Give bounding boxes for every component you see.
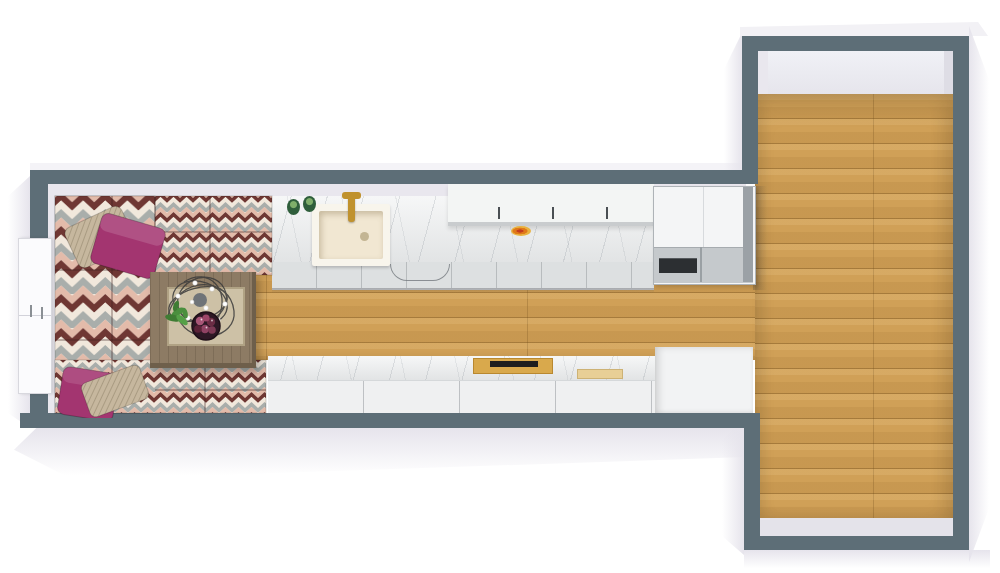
sink-drain (360, 232, 369, 241)
door-leaf-seam (19, 315, 51, 316)
wall-rightroom-left-lower (744, 413, 760, 550)
double-door[interactable] (18, 238, 52, 394)
floor-right-room (755, 94, 953, 518)
exterior-face-rightroom-right (969, 26, 989, 562)
gold-faucet-spout (342, 192, 361, 199)
exterior-face-rightroom-bottom (744, 550, 990, 570)
door-handle (30, 305, 32, 317)
wall-wing-top (32, 170, 758, 184)
fridge-door-seam (700, 247, 702, 282)
tall-cabinet-block[interactable] (655, 347, 753, 415)
decor-bowl (192, 312, 220, 340)
wall-rightroom-bottom (744, 536, 969, 550)
island-counter-front[interactable] (268, 380, 655, 415)
cabinet-handle (606, 207, 608, 219)
wall-rightroom-left-upper (742, 36, 758, 184)
drawer-arc-handle (390, 264, 450, 281)
cutting-board-inlay (490, 361, 538, 367)
door-handle (41, 307, 43, 319)
inner-face-rightroom-bottom (757, 518, 954, 536)
exterior-face-rightroom-topwedge (724, 30, 742, 170)
refrigerator[interactable] (653, 186, 756, 285)
floorplan-render (0, 0, 1000, 573)
kitchen-counter-floor-shadow (272, 288, 654, 293)
inner-face-rightroom-top (756, 51, 954, 94)
fruit-dish[interactable] (511, 226, 531, 236)
wall-rightroom-right (953, 36, 969, 550)
table-decor[interactable] (148, 256, 260, 368)
sculpture-center (193, 293, 207, 307)
fridge-top-seam (703, 187, 704, 247)
fridge-side-panel (743, 187, 753, 282)
cabinet-handle (498, 207, 500, 219)
exterior-face-wing-bottom (14, 428, 760, 480)
exterior-face-rightroom-leftlower (722, 420, 744, 555)
cabinet-handle (552, 207, 554, 219)
wall-rightroom-top (742, 36, 969, 51)
exterior-face-wing-top (30, 163, 758, 170)
green-jar[interactable] (303, 196, 316, 212)
exterior-face-rightroom-top (740, 22, 988, 36)
fridge-handle-recess (659, 258, 697, 273)
cutting-board-light[interactable] (577, 369, 623, 379)
upper-wall-cabinets[interactable] (448, 184, 654, 226)
kitchen-base-cabinets[interactable] (272, 262, 654, 290)
